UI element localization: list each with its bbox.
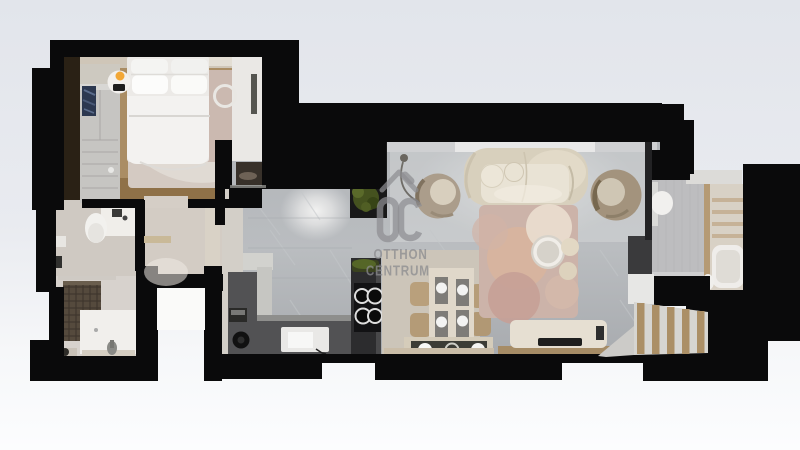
svg-text:OTTHON: OTTHON xyxy=(374,246,428,263)
svg-text:CENTRUM: CENTRUM xyxy=(366,262,430,279)
